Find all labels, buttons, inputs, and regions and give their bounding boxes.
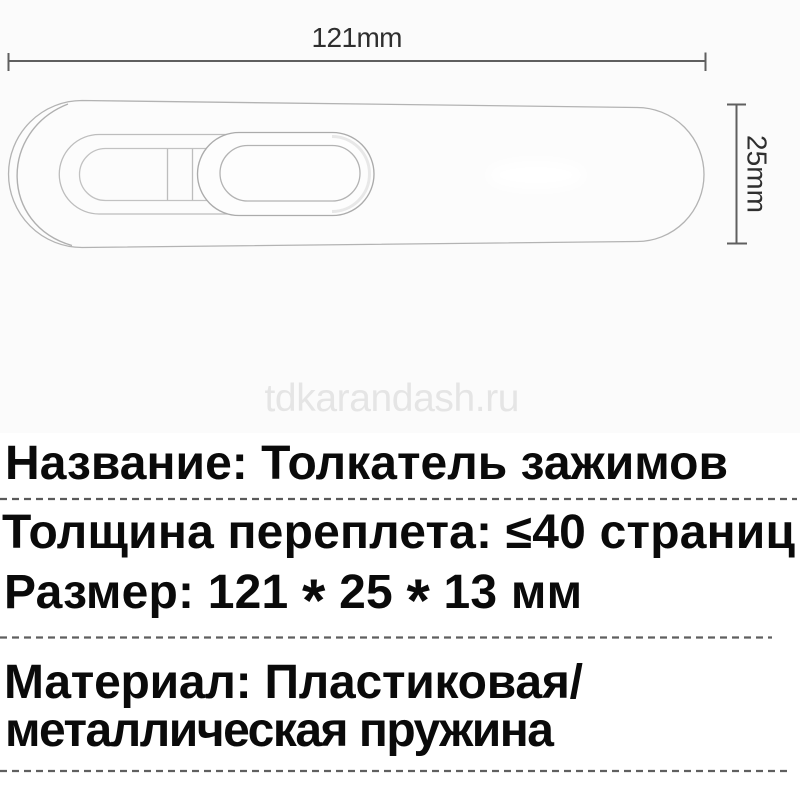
- svg-text:Толщина переплета: ≤40 страниц: Толщина переплета: ≤40 страниц: [2, 506, 795, 559]
- svg-text:Название: Толкатель зажимов: Название: Толкатель зажимов: [5, 437, 728, 490]
- svg-text:металлическая пружина: металлическая пружина: [5, 704, 554, 757]
- svg-text:121mm: 121mm: [312, 22, 403, 53]
- svg-text:25mm: 25mm: [742, 135, 773, 213]
- svg-text:tdkarandash.ru: tdkarandash.ru: [265, 377, 520, 420]
- svg-text:Размер: 121 * 25 * 13 мм: Размер: 121 * 25 * 13 мм: [4, 566, 582, 634]
- svg-text:Материал: Пластиковая/: Материал: Пластиковая/: [4, 656, 583, 709]
